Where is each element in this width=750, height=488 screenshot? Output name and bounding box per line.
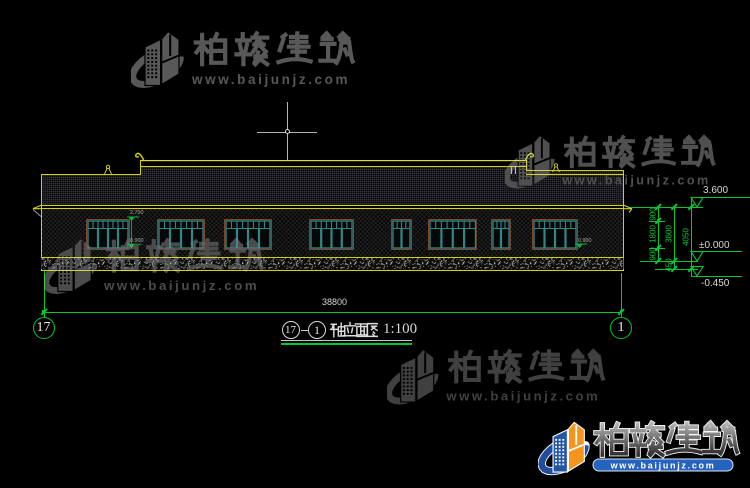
svg-text:www.baijunjz.com: www.baijunjz.com xyxy=(103,278,259,293)
svg-text:www.baijunjz.com: www.baijunjz.com xyxy=(561,174,710,188)
svg-text:www.baijunjz.com: www.baijunjz.com xyxy=(191,72,350,87)
svg-text:www.baijunjz.com: www.baijunjz.com xyxy=(610,461,716,471)
svg-text:www.baijunjz.com: www.baijunjz.com xyxy=(445,389,600,404)
